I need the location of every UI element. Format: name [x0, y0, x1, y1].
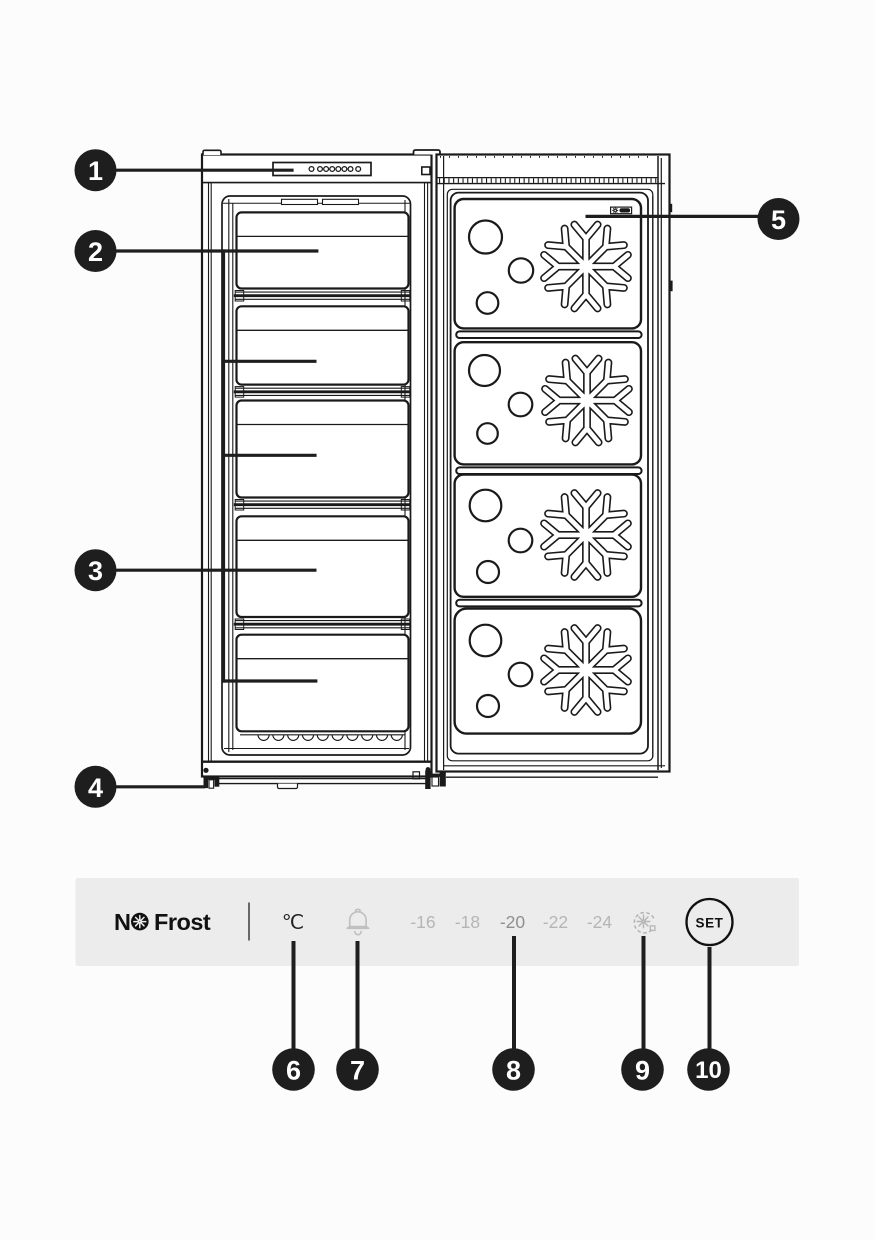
- svg-text:4: 4: [88, 773, 103, 803]
- svg-text:-24: -24: [587, 912, 613, 932]
- svg-text:-22: -22: [543, 912, 568, 932]
- svg-text:-16: -16: [410, 912, 435, 932]
- svg-text:SET: SET: [695, 916, 723, 931]
- svg-text:N: N: [114, 909, 130, 935]
- svg-text:℃: ℃: [282, 912, 304, 934]
- svg-text:3: 3: [88, 556, 103, 586]
- svg-text:-18: -18: [455, 912, 480, 932]
- svg-text:Frost: Frost: [154, 909, 211, 935]
- svg-text:6: 6: [286, 1056, 301, 1086]
- svg-text:10: 10: [695, 1057, 722, 1084]
- svg-text:1: 1: [88, 156, 103, 186]
- svg-text:5: 5: [771, 205, 786, 235]
- svg-text:-20: -20: [500, 912, 526, 932]
- svg-text:8: 8: [506, 1056, 521, 1086]
- svg-text:7: 7: [350, 1056, 365, 1086]
- svg-text:2: 2: [88, 237, 103, 267]
- svg-text:9: 9: [635, 1056, 650, 1086]
